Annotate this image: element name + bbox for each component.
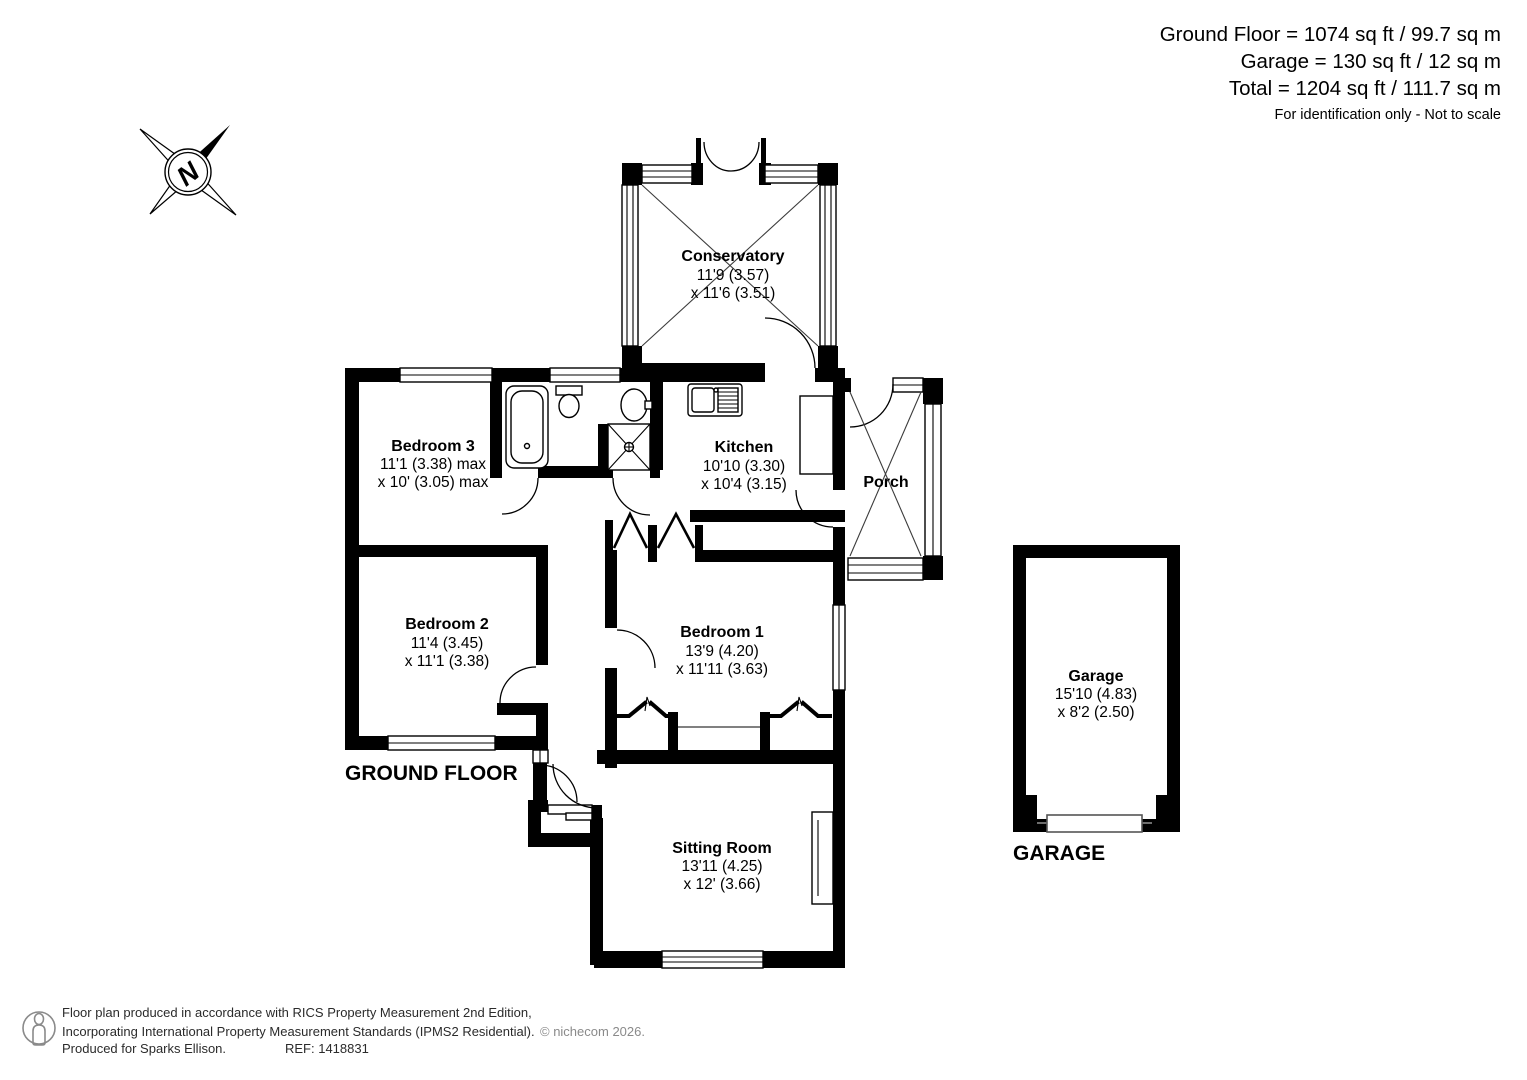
garage-label: Garage 15'10 (4.83) x 8'2 (2.50) bbox=[1055, 668, 1137, 721]
hall-window bbox=[533, 750, 548, 763]
svg-text:x 10' (3.05) max: x 10' (3.05) max bbox=[378, 474, 489, 491]
french-door-arc-right bbox=[731, 142, 759, 171]
sitting-room-label: Sitting Room 13'11 (4.25) x 12' (3.66) bbox=[672, 840, 772, 893]
sitting-room-window bbox=[662, 951, 763, 968]
kitchen-sink bbox=[688, 384, 742, 416]
person-icon bbox=[23, 1012, 55, 1045]
bathroom-window bbox=[550, 368, 620, 382]
toilet bbox=[556, 386, 582, 418]
svg-text:Sitting Room: Sitting Room bbox=[672, 840, 772, 857]
bedroom2-door-arc bbox=[500, 667, 536, 703]
bedroom1-label: Bedroom 1 13'9 (4.20) x 11'11 (3.63) bbox=[676, 624, 768, 678]
bedroom1-door-arc bbox=[617, 630, 655, 668]
bathtub bbox=[506, 386, 548, 468]
bedroom2-label: Bedroom 2 11'4 (3.45) x 11'1 (3.38) bbox=[405, 616, 490, 670]
floorplan-page: N Ground Floor = 1074 sq ft / 99.7 sq m … bbox=[0, 0, 1527, 1080]
svg-text:x 8'2 (2.50): x 8'2 (2.50) bbox=[1057, 704, 1134, 721]
bedroom3-door-arc bbox=[502, 478, 538, 514]
porch-label: Porch bbox=[863, 474, 908, 491]
bedroom1-window bbox=[833, 605, 845, 690]
porch-window-top bbox=[893, 378, 923, 392]
porch-entrance-door-arc bbox=[850, 384, 893, 427]
svg-text:Porch: Porch bbox=[863, 474, 908, 491]
svg-text:x 11'11 (3.63): x 11'11 (3.63) bbox=[676, 661, 768, 678]
compass-rose: N bbox=[140, 125, 236, 215]
svg-text:x 10'4 (3.15): x 10'4 (3.15) bbox=[701, 476, 787, 493]
conservatory-door-arc bbox=[765, 318, 815, 368]
svg-text:13'11 (4.25): 13'11 (4.25) bbox=[681, 858, 762, 875]
footer-ref: REF: 1418831 bbox=[285, 1041, 369, 1056]
kitchen-counter bbox=[800, 396, 833, 474]
area-total: Total = 1204 sq ft / 111.7 sq m bbox=[1229, 77, 1501, 100]
area-ground-floor: Ground Floor = 1074 sq ft / 99.7 sq m bbox=[1160, 23, 1501, 46]
svg-text:Bedroom 2: Bedroom 2 bbox=[405, 616, 489, 633]
svg-text:13'9 (4.20): 13'9 (4.20) bbox=[685, 643, 759, 660]
svg-text:Conservatory: Conservatory bbox=[681, 248, 784, 265]
svg-text:x 12' (3.66): x 12' (3.66) bbox=[683, 876, 760, 893]
conservatory-label: Conservatory 11'9 (3.57) x 11'6 (3.51) bbox=[681, 248, 784, 302]
cupboard-bifold-left bbox=[614, 514, 647, 548]
bedroom2-window bbox=[388, 736, 495, 750]
area-garage: Garage = 130 sq ft / 12 sq m bbox=[1241, 50, 1501, 73]
footer-line2: Incorporating International Property Mea… bbox=[62, 1024, 535, 1039]
cupboard-bifold-right bbox=[658, 514, 694, 548]
footer: Floor plan produced in accordance with R… bbox=[23, 1005, 645, 1056]
fireplace bbox=[812, 812, 833, 904]
svg-text:Kitchen: Kitchen bbox=[715, 439, 774, 456]
french-door-arc-left bbox=[704, 142, 731, 171]
bedroom3-window bbox=[400, 368, 492, 382]
svg-text:11'9 (3.57): 11'9 (3.57) bbox=[697, 267, 769, 284]
bedroom3-label: Bedroom 3 11'1 (3.38) max x 10' (3.05) m… bbox=[378, 438, 489, 491]
washbasin bbox=[621, 389, 652, 421]
area-summary: Ground Floor = 1074 sq ft / 99.7 sq m Ga… bbox=[1160, 23, 1501, 123]
bathroom-door-arc bbox=[613, 478, 650, 515]
footer-line1: Floor plan produced in accordance with R… bbox=[62, 1005, 532, 1020]
svg-text:x 11'1 (3.38): x 11'1 (3.38) bbox=[405, 653, 490, 670]
wardrobes bbox=[614, 697, 830, 727]
porch-window-bottom bbox=[848, 558, 923, 580]
svg-text:Bedroom 3: Bedroom 3 bbox=[391, 438, 475, 455]
svg-text:Bedroom 1: Bedroom 1 bbox=[680, 624, 764, 641]
garage-door bbox=[1037, 815, 1152, 832]
identification-note: For identification only - Not to scale bbox=[1275, 107, 1501, 123]
svg-text:10'10 (3.30): 10'10 (3.30) bbox=[703, 458, 785, 475]
footer-line3: Produced for Sparks Ellison. bbox=[62, 1041, 226, 1056]
svg-text:11'4 (3.45): 11'4 (3.45) bbox=[411, 635, 483, 652]
svg-text:15'10 (4.83): 15'10 (4.83) bbox=[1055, 686, 1137, 703]
ground-floor-title: GROUND FLOOR bbox=[345, 762, 518, 785]
kitchen-label: Kitchen 10'10 (3.30) x 10'4 (3.15) bbox=[701, 439, 787, 493]
garage-title: GARAGE bbox=[1013, 842, 1105, 865]
svg-text:x 11'6 (3.51): x 11'6 (3.51) bbox=[691, 285, 776, 302]
footer-copyright: © nichecom 2026. bbox=[540, 1024, 645, 1039]
svg-text:Garage: Garage bbox=[1068, 668, 1123, 685]
front-door-sill bbox=[548, 805, 592, 820]
floorplan-canvas: N Ground Floor = 1074 sq ft / 99.7 sq m … bbox=[0, 0, 1527, 1080]
svg-text:11'1 (3.38) max: 11'1 (3.38) max bbox=[380, 456, 486, 473]
shower bbox=[608, 424, 650, 470]
porch-window-right bbox=[925, 404, 941, 556]
